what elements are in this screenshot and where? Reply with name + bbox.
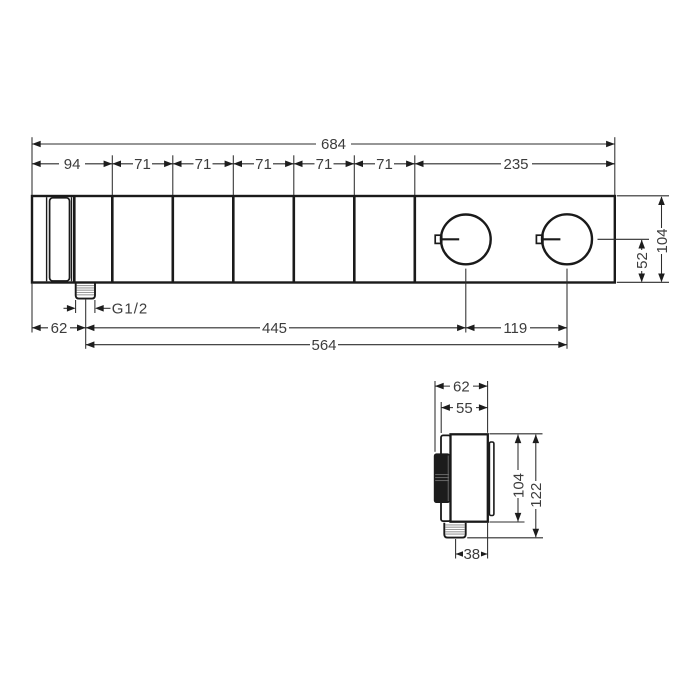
svg-text:235: 235 xyxy=(503,156,528,173)
svg-text:71: 71 xyxy=(134,156,151,173)
svg-text:94: 94 xyxy=(64,156,81,173)
svg-text:445: 445 xyxy=(262,320,287,337)
svg-text:71: 71 xyxy=(376,156,393,173)
svg-text:119: 119 xyxy=(503,320,527,337)
svg-text:38: 38 xyxy=(463,546,480,563)
svg-text:G1/2: G1/2 xyxy=(112,301,149,318)
svg-text:62: 62 xyxy=(51,320,68,337)
svg-text:122: 122 xyxy=(528,483,545,508)
svg-text:71: 71 xyxy=(195,156,212,173)
svg-text:52: 52 xyxy=(634,252,651,269)
svg-text:684: 684 xyxy=(321,136,346,153)
svg-text:62: 62 xyxy=(453,378,470,395)
svg-text:104: 104 xyxy=(510,473,527,498)
svg-text:564: 564 xyxy=(311,337,336,354)
svg-text:71: 71 xyxy=(316,156,333,173)
svg-text:71: 71 xyxy=(255,156,272,173)
svg-text:55: 55 xyxy=(456,400,473,417)
svg-text:104: 104 xyxy=(654,228,671,253)
